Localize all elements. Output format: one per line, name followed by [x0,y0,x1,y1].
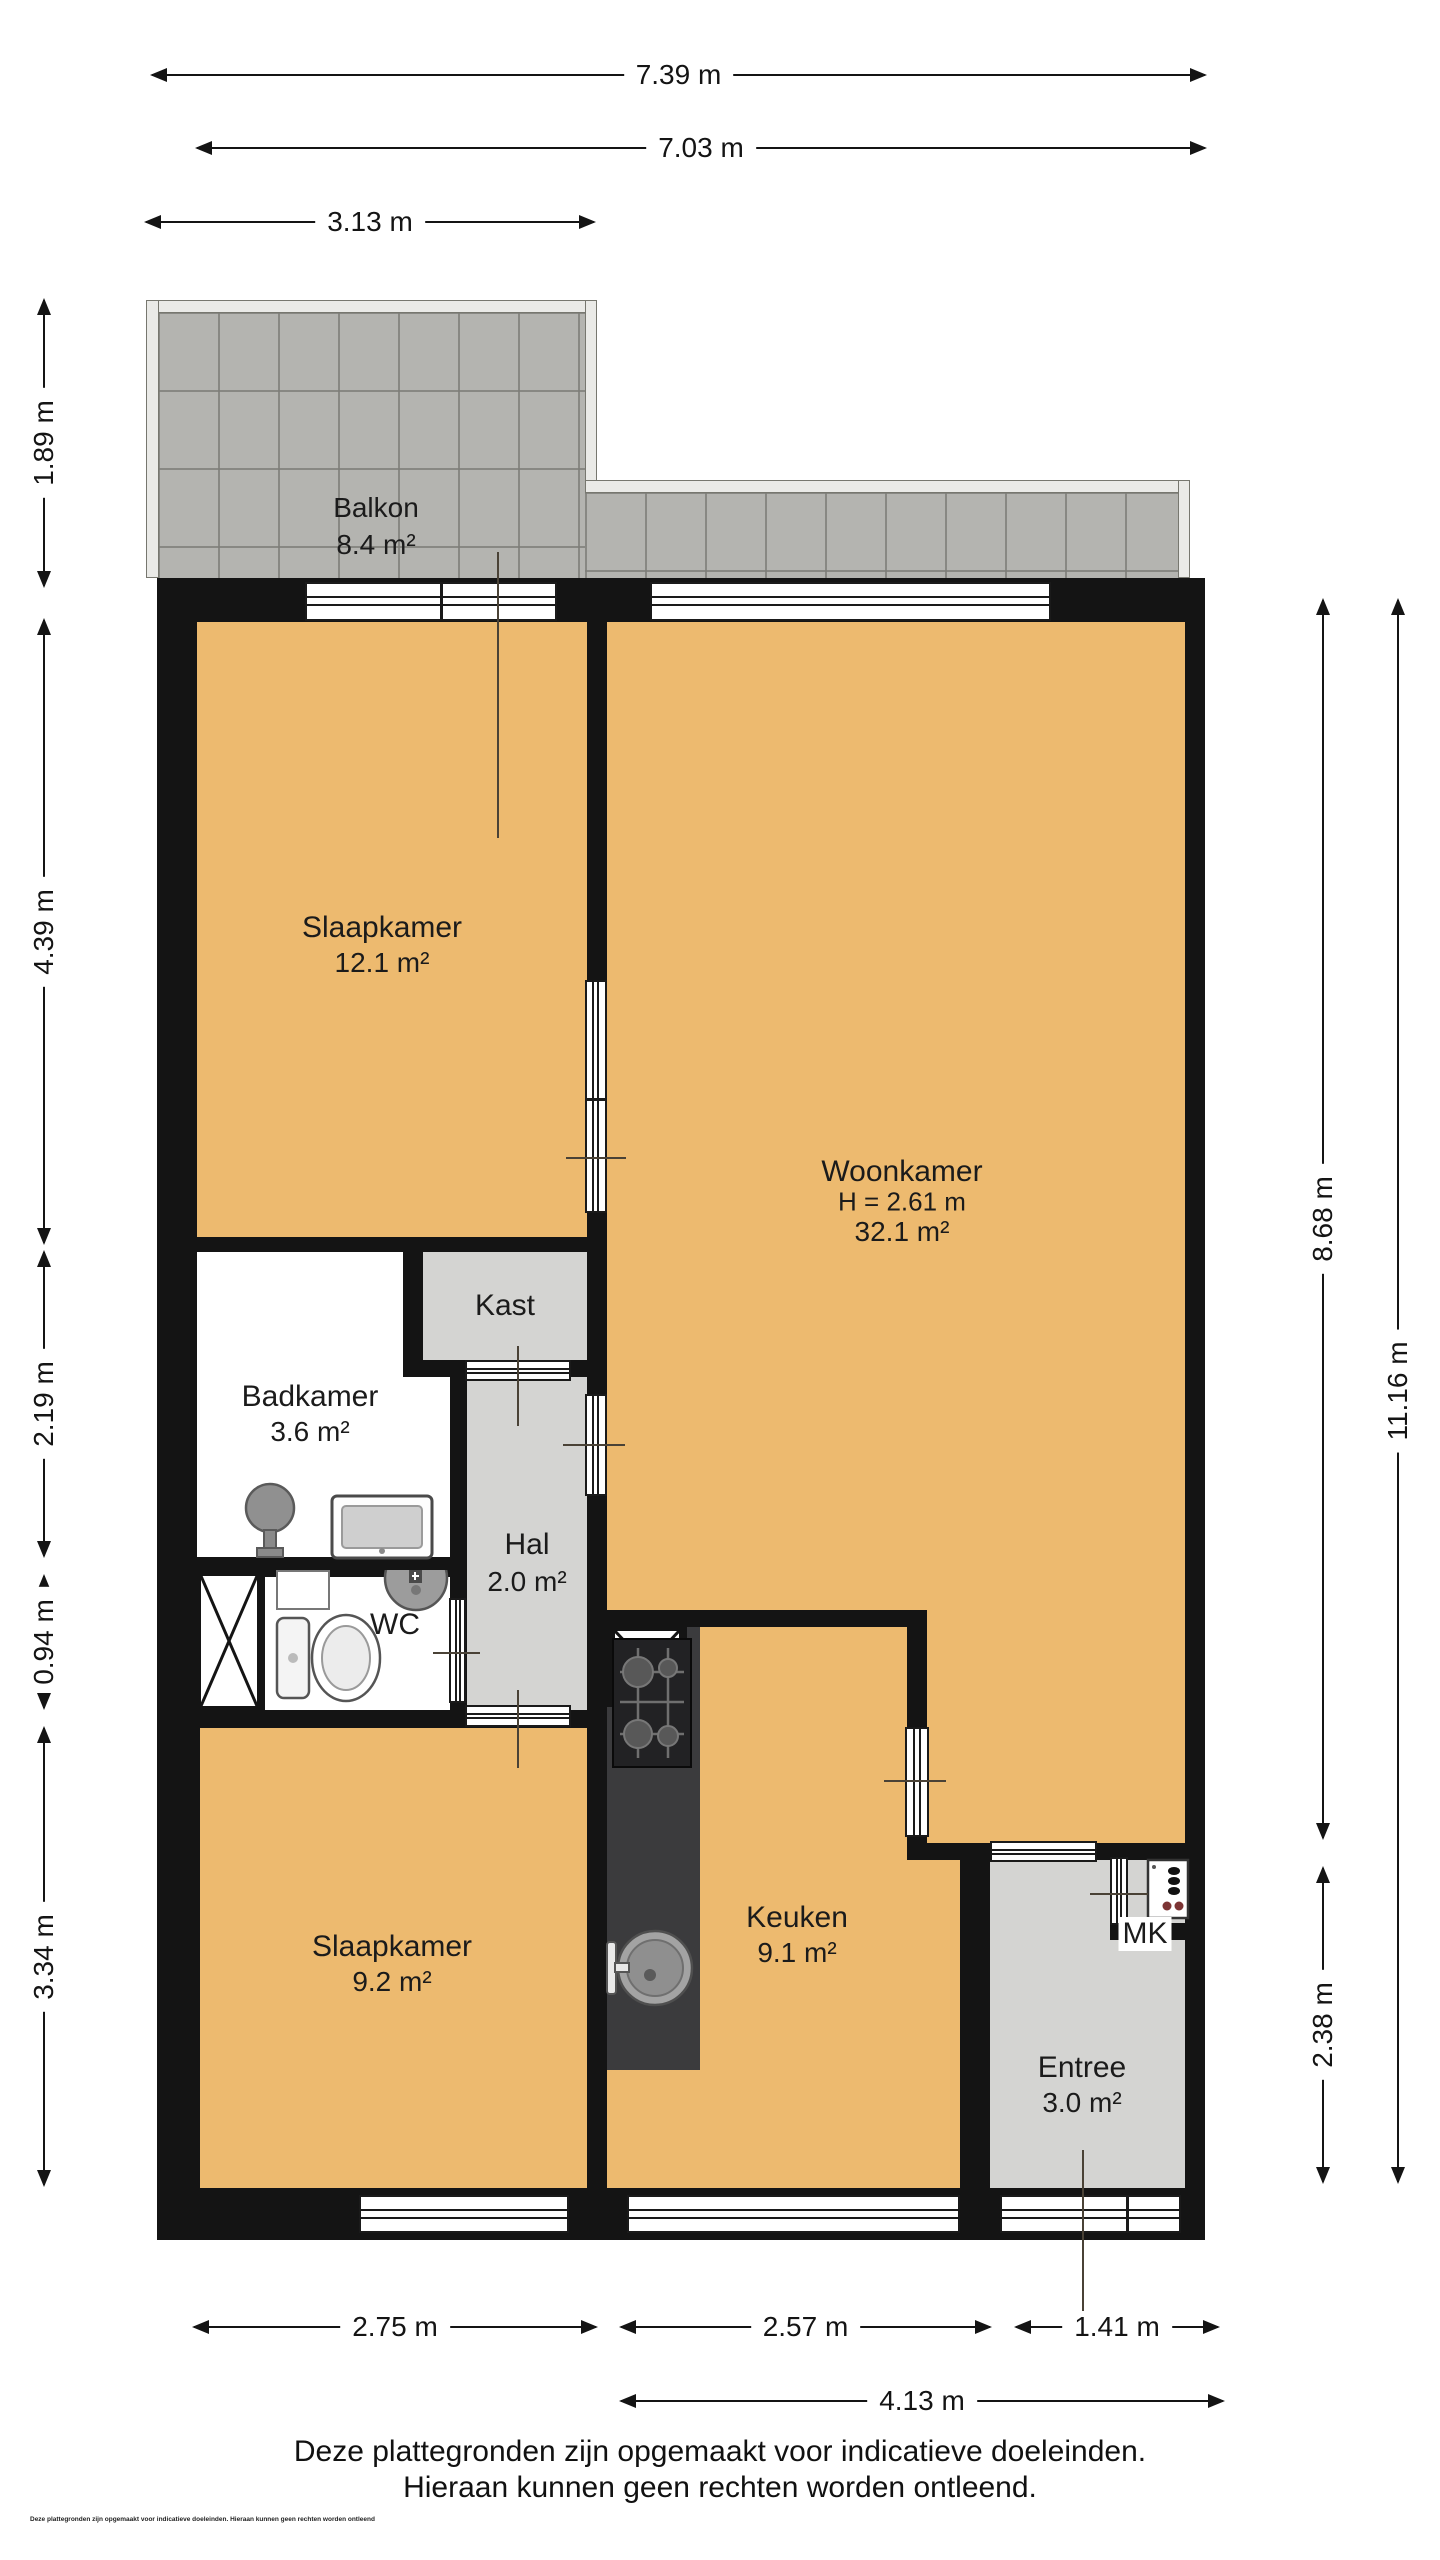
fineprint: Deze plattegronden zijn opgemaakt voor i… [30,2516,375,2523]
dim-right-868: 8.68 m [1322,600,1324,1838]
entree-label: Entree [1038,2051,1126,2085]
keuken-woonkamer-door [905,1727,929,1837]
dim-left-189-label: 1.89 m [28,388,60,498]
entree-woonkamer-door [990,1841,1097,1862]
dim-left-439: 4.39 m [43,620,45,1243]
slaapkamer-1-area: 12.1 m² [335,947,430,979]
dim-bottom-257-label: 2.57 m [751,2311,861,2343]
tick-wc-door [433,1652,480,1654]
meter-cabinet-panel-icon [1146,1858,1190,1920]
dim-left-439-label: 4.39 m [28,877,60,987]
slaapkamer-2-window [359,2195,569,2233]
duct-shaft-wc [193,1568,265,1714]
window-mullion [440,584,443,619]
woonkamer-height: H = 2.61 m [838,1187,966,1218]
tick-mid-door [566,1157,626,1159]
wc-label: WC [370,1608,420,1642]
slaapkamer-1-window [305,582,557,621]
dim-left-219-label: 2.19 m [28,1349,60,1459]
dim-right-238: 2.38 m [1322,1868,1324,2182]
door-frame-divider [1126,2197,1129,2231]
disclaimer-line-1: Deze plattegronden zijn opgemaakt voor i… [0,2434,1440,2470]
badkamer-label: Badkamer [242,1380,379,1414]
hal-wc-badkamer-door [449,1598,466,1703]
dim-bottom-275: 2.75 m [194,2326,596,2328]
tick-kast-door [517,1346,519,1426]
balcony-rail-top-right [585,480,1190,493]
entree-front-door [1000,2195,1181,2233]
woonkamer-area: 32.1 m² [855,1216,950,1248]
room-badkamer-floor-upper [197,1252,403,1377]
bathroom-vanity-icon [330,1494,434,1560]
balkon-area: 8.4 m² [336,529,415,561]
hal-area: 2.0 m² [487,1566,566,1598]
hal-label: Hal [504,1528,549,1562]
tick-keuken-door [884,1780,946,1782]
balcony-rail-left [146,300,159,578]
badkamer-area: 3.6 m² [270,1416,349,1448]
dim-top-739-label: 7.39 m [624,59,734,91]
tick-hal-door [563,1444,625,1446]
dim-top-313: 3.13 m [146,221,594,223]
dim-right-238-label: 2.38 m [1307,1970,1339,2080]
keuken-label: Keuken [746,1901,848,1935]
door-mullion [587,1098,605,1101]
mk-door [1110,1857,1128,1925]
balkon-label: Balkon [333,492,419,524]
shaft-x-icon [201,1576,257,1706]
keuken-area: 9.1 m² [757,1937,836,1969]
dim-left-094-label: 0.94 m [28,1587,60,1697]
dim-bottom-413: 4.13 m [621,2400,1223,2402]
balcony-rail-top-left [146,300,597,313]
kast-label: Kast [475,1289,535,1323]
slaapkamer-1-woonkamer-door [585,980,607,1213]
dim-top-703: 7.03 m [197,147,1205,149]
balcony-rail-step [585,300,597,492]
dim-left-334: 3.34 m [43,1728,45,2185]
room-keuken-floor-side [907,1860,960,2188]
dim-left-094: 0.94 m [43,1576,45,1708]
kitchen-sink-icon [602,1922,694,2014]
slaapkamer-1-label: Slaapkamer [302,911,462,945]
room-woonkamer-floor-lower [927,1610,1185,1843]
dim-left-334-label: 3.34 m [28,1902,60,2012]
stove-hob-icon [612,1638,692,1768]
shower-pedestal-icon [240,1482,300,1562]
slaapkamer-2-area: 9.2 m² [352,1966,431,1998]
dim-top-313-label: 3.13 m [315,206,425,238]
disclaimer: Deze plattegronden zijn opgemaakt voor i… [0,2434,1440,2506]
woonkamer-label: Woonkamer [821,1155,982,1189]
balcony-tiles-right [585,492,1178,578]
tick-entree-door [1082,2150,1084,2330]
disclaimer-line-2: Hieraan kunnen geen rechten worden ontle… [0,2470,1440,2506]
floor-plan-canvas: Balkon 8.4 m² [0,0,1440,2560]
dim-left-189: 1.89 m [43,300,45,586]
entree-area: 3.0 m² [1042,2087,1121,2119]
tick-window-slaapkamer1 [497,552,499,838]
room-woonkamer-floor-main [607,622,1185,1610]
dim-top-739: 7.39 m [152,74,1205,76]
slaapkamer-2-label: Slaapkamer [312,1930,472,1964]
dim-bottom-257: 2.57 m [621,2326,990,2328]
dim-bottom-141: 1.41 m [1016,2326,1218,2328]
dim-bottom-141-label: 1.41 m [1062,2311,1172,2343]
dim-top-703-label: 7.03 m [646,132,756,164]
tick-hal-bottom-door [517,1690,519,1768]
dim-bottom-275-label: 2.75 m [340,2311,450,2343]
dim-right-1116-label: 11.16 m [1382,1329,1414,1452]
balcony-rail-right [1178,480,1190,578]
dim-bottom-413-label: 4.13 m [867,2385,977,2417]
tick-mk-door [1090,1893,1148,1895]
mk-label: MK [1119,1917,1172,1951]
dim-right-1116: 11.16 m [1397,600,1399,2182]
woonkamer-window [650,582,1051,621]
keuken-window [627,2195,960,2233]
dim-left-219: 2.19 m [43,1252,45,1556]
dim-right-868-label: 8.68 m [1307,1164,1339,1274]
